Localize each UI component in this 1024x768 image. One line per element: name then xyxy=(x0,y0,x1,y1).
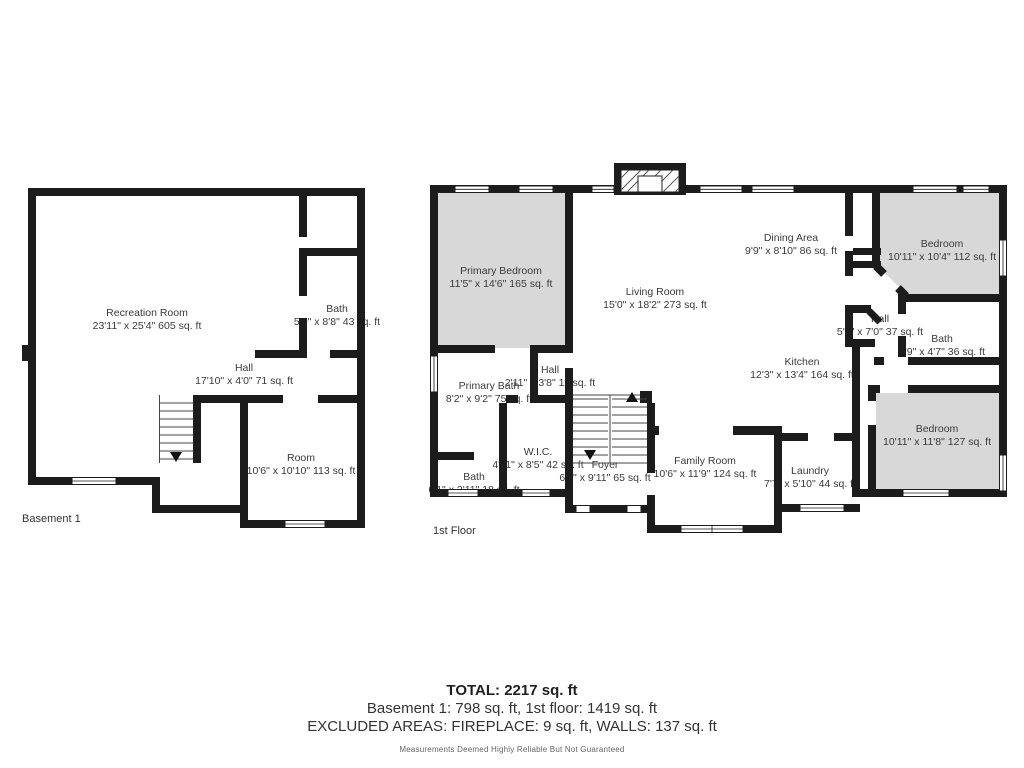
room-label-basement-room: Room 10'6" x 10'10" 113 sq. ft xyxy=(247,452,356,478)
summary-breakdown: Basement 1: 798 sq. ft, 1st floor: 1419 … xyxy=(0,700,1024,717)
room-label-basement-hall: Hall 17'10" x 4'0" 71 sq. ft xyxy=(195,362,293,388)
room-label-family-room: Family Room 10'6" x 11'9" 124 sq. ft xyxy=(654,455,757,481)
room-label-bath-lower: Bath 6'1" x 2'11" 18 sq. ft xyxy=(428,471,519,497)
floorplan-image: Recreation Room 23'11" x 25'4" 605 sq. f… xyxy=(0,0,1024,768)
basement-floor-label: Basement 1 xyxy=(22,513,81,525)
first-floor-label: 1st Floor xyxy=(433,525,476,537)
summary-total: TOTAL: 2217 sq. ft xyxy=(0,682,1024,699)
room-label-laundry: Laundry 7'7" x 5'10" 44 sq. ft xyxy=(764,465,856,491)
summary-disclaimer: Measurements Deemed Highly Reliable But … xyxy=(0,745,1024,754)
room-label-basement-bath: Bath 5'0" x 8'8" 43 sq. ft xyxy=(294,303,380,329)
room-label-living-room: Living Room 15'0" x 18'2" 273 sq. ft xyxy=(603,286,707,312)
summary-excluded: EXCLUDED AREAS: FIREPLACE: 9 sq. ft, WAL… xyxy=(0,718,1024,735)
room-label-kitchen: Kitchen 12'3" x 13'4" 164 sq. ft xyxy=(750,356,854,382)
room-label-bath-upper: Bath 7'9" x 4'7" 36 sq. ft xyxy=(899,333,985,359)
floorplan-labels-layer: Recreation Room 23'11" x 25'4" 605 sq. f… xyxy=(0,0,1024,768)
room-label-bedroom-upper: Bedroom 10'11" x 10'4" 112 sq. ft xyxy=(888,238,996,264)
room-label-hall-center: Hall 2'11" x 3'8" 11 sq. ft xyxy=(505,364,595,390)
room-label-bedroom-lower: Bedroom 10'11" x 11'8" 127 sq. ft xyxy=(883,423,991,449)
room-label-dining-area: Dining Area 9'9" x 8'10" 86 sq. ft xyxy=(745,232,837,258)
room-label-recreation-room: Recreation Room 23'11" x 25'4" 605 sq. f… xyxy=(93,307,202,333)
room-label-primary-bedroom: Primary Bedroom 11'5" x 14'6" 165 sq. ft xyxy=(450,265,553,291)
summary-block: TOTAL: 2217 sq. ft Basement 1: 798 sq. f… xyxy=(0,682,1024,754)
room-label-foyer: Foyer 6'8" x 9'11" 65 sq. ft xyxy=(559,459,650,485)
